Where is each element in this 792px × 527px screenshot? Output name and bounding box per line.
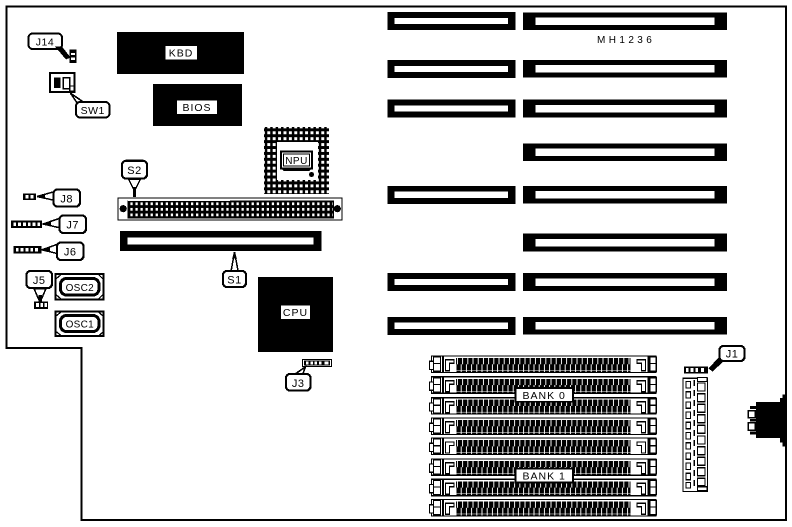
svg-text:BANK 1: BANK 1: [523, 471, 566, 483]
svg-text:OSC2: OSC2: [66, 283, 95, 294]
svg-text:J3: J3: [292, 378, 305, 390]
svg-text:KBD: KBD: [169, 48, 194, 60]
svg-text:MH1236: MH1236: [597, 35, 655, 46]
svg-text:BANK 0: BANK 0: [523, 390, 566, 402]
svg-text:J8: J8: [60, 193, 73, 205]
svg-text:S1: S1: [227, 274, 241, 286]
svg-text:J1: J1: [726, 349, 739, 361]
svg-text:CPU: CPU: [283, 307, 308, 319]
svg-text:BIOS: BIOS: [182, 102, 211, 114]
svg-text:S2: S2: [127, 165, 141, 177]
svg-text:J5: J5: [33, 275, 46, 287]
svg-text:J7: J7: [66, 220, 79, 232]
svg-text:NPU: NPU: [285, 156, 308, 167]
svg-text:J6: J6: [64, 247, 77, 259]
svg-text:OSC1: OSC1: [66, 320, 95, 331]
svg-text:SW1: SW1: [81, 105, 105, 117]
svg-text:J14: J14: [36, 36, 54, 48]
